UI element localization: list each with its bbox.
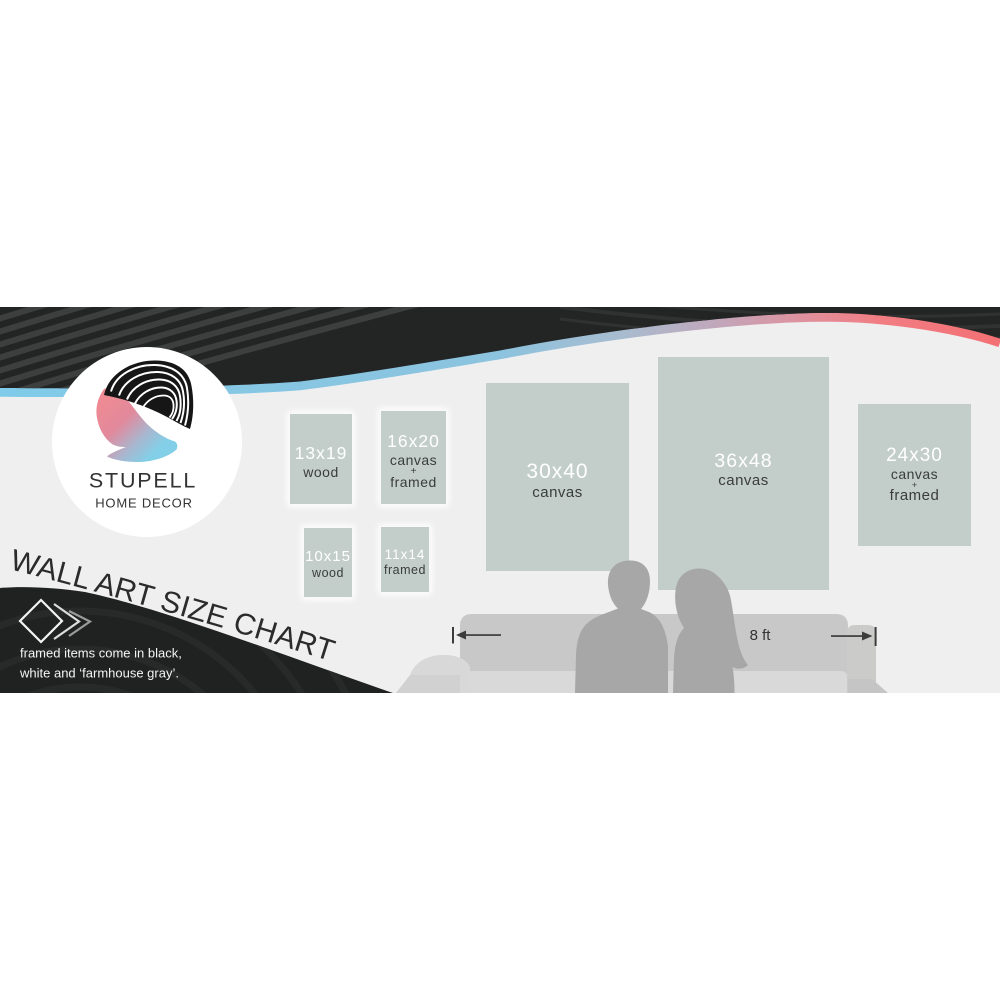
svg-text:STUPELL: STUPELL [89, 469, 197, 493]
svg-text:8 ft: 8 ft [750, 627, 772, 644]
svg-text:framed items come in black,: framed items come in black, [20, 646, 182, 661]
svg-text:white and ‘farmhouse gray’.: white and ‘farmhouse gray’. [19, 666, 179, 681]
svg-text:HOME DECOR: HOME DECOR [95, 496, 193, 511]
